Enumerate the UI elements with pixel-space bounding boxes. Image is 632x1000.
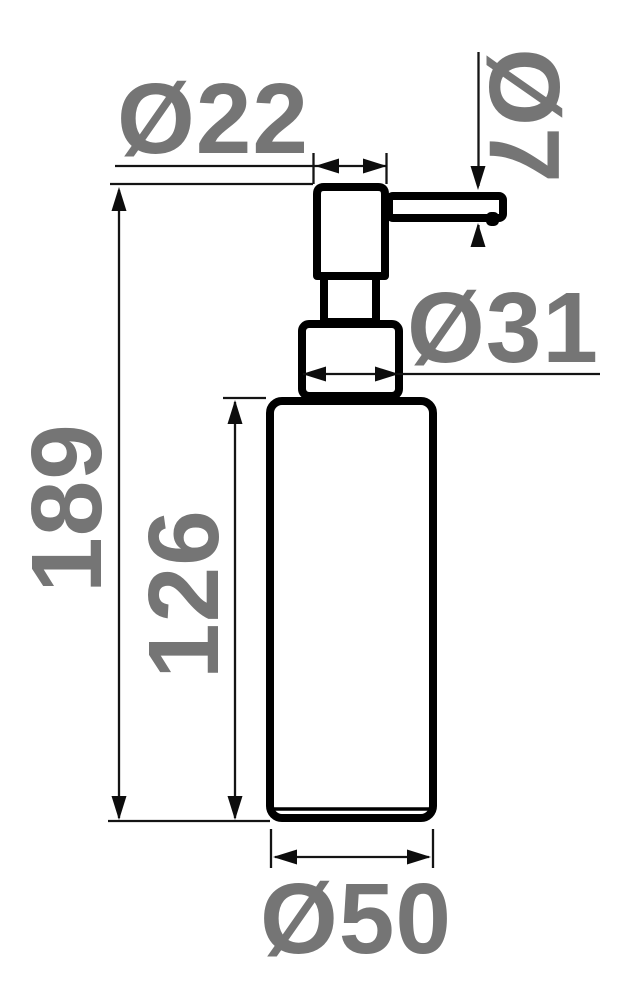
dim-label-overall-height: 189 [11, 423, 123, 593]
dim-label-body-height: 126 [128, 509, 240, 679]
collar-shape [302, 324, 399, 396]
dispenser-dimension-drawing: Ø22 Ø7 Ø31 189 [0, 0, 632, 1000]
spout-outlet-shape [486, 212, 499, 226]
dimension-body-height: 126 [128, 398, 266, 820]
arrow-up-icon [112, 187, 127, 211]
bottle-body-shape [270, 401, 433, 818]
arrow-up-icon [228, 400, 243, 424]
dimension-body-diameter: Ø50 [260, 829, 452, 975]
spout-shape [389, 196, 503, 218]
arrow-down-icon [228, 796, 243, 820]
technical-drawing-canvas: Ø22 Ø7 Ø31 189 [0, 0, 632, 1000]
dimension-head-diameter: Ø22 [115, 63, 387, 184]
arrow-right-icon [363, 159, 387, 174]
arrow-up-icon [471, 223, 486, 247]
dim-label-head-diameter: Ø22 [117, 63, 309, 175]
dim-label-body-diameter: Ø50 [260, 863, 452, 975]
dim-label-spout-diameter: Ø7 [468, 48, 580, 183]
pump-head-shape [317, 187, 385, 276]
dim-label-collar-diameter: Ø31 [407, 272, 599, 384]
arrow-left-icon [315, 159, 339, 174]
arrow-down-icon [112, 796, 127, 820]
